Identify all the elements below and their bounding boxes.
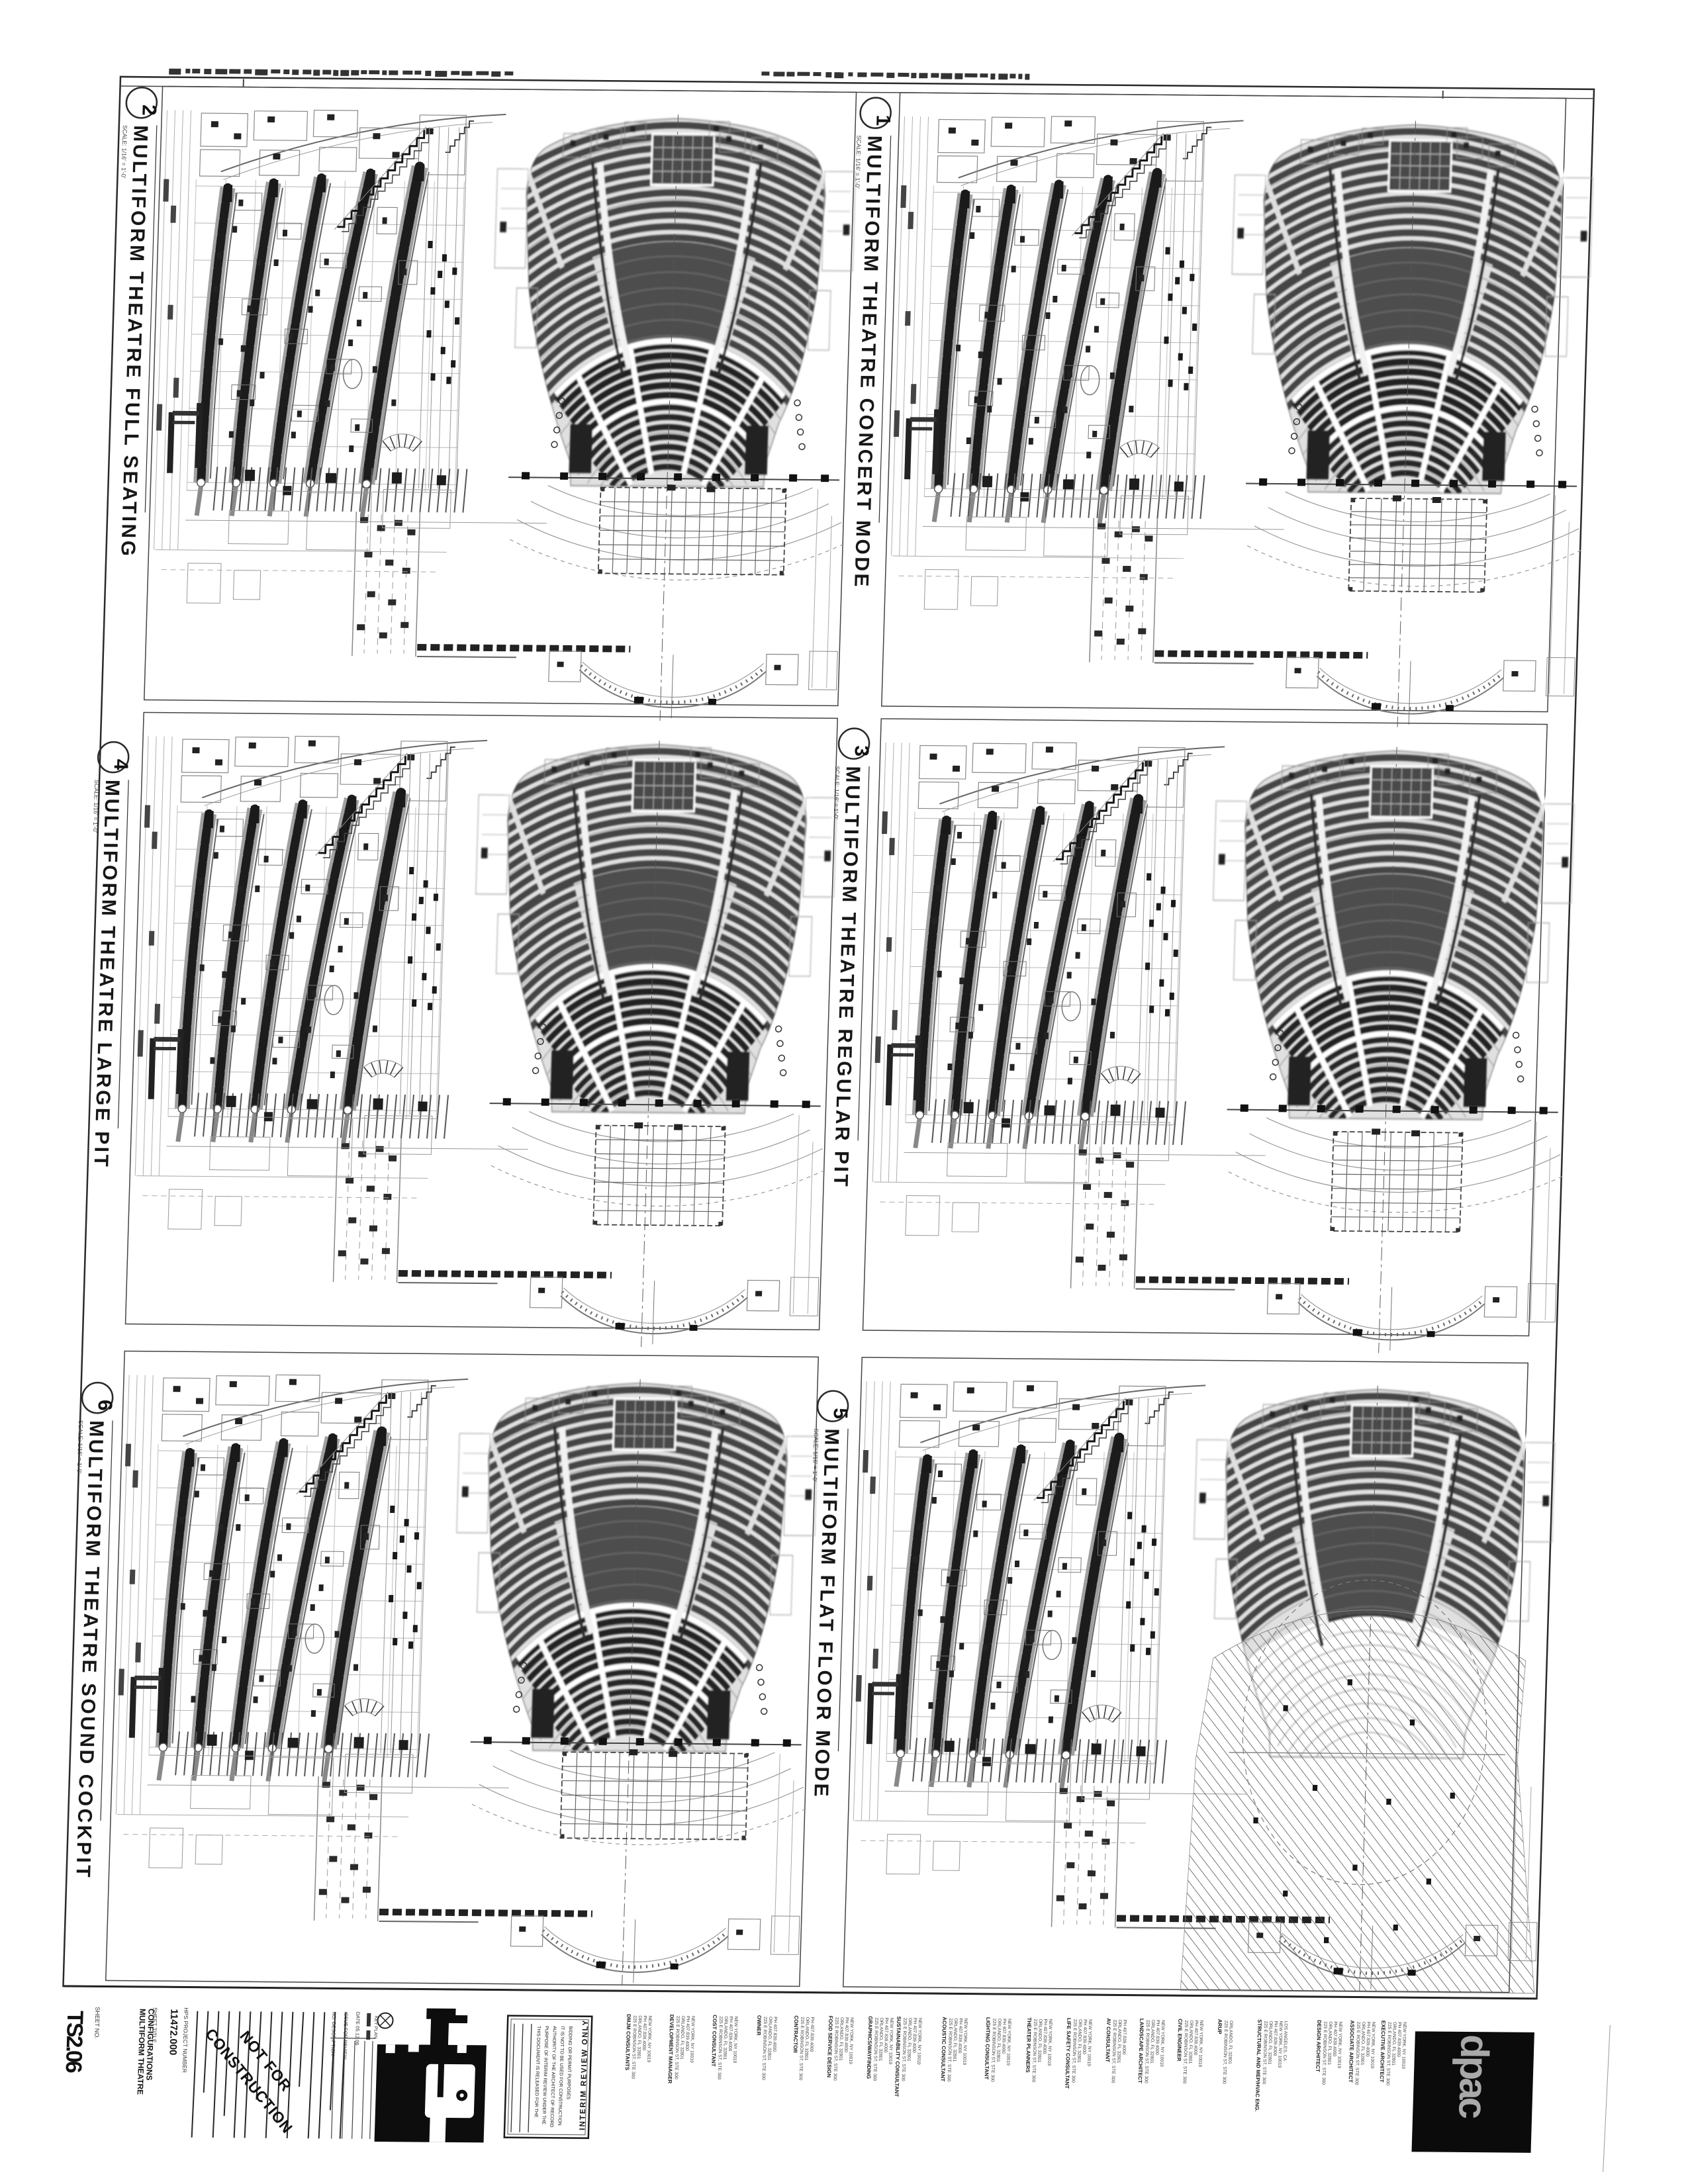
svg-text:ISSUE FOR REVIEW: ISSUE FOR REVIEW [342, 2012, 349, 2060]
svg-text:SUSTAINABILITY CONSULTANT: SUSTAINABILITY CONSULTANT [894, 2017, 902, 2097]
svg-text:3: 3 [851, 745, 872, 756]
svg-text:SCALE: 1/16' = 1'-0': SCALE: 1/16' = 1'-0' [76, 1420, 84, 1474]
svg-text:AV CONSULTANT: AV CONSULTANT [1104, 2018, 1111, 2062]
svg-text:THEATER PLANNERS: THEATER PLANNERS [1025, 2017, 1033, 2073]
svg-text:CONTRACTOR: CONTRACTOR [792, 2015, 800, 2053]
svg-text:DESIGN ARCHITECT: DESIGN ARCHITECT [1315, 2020, 1322, 2072]
svg-text:CIVIL ENGINEER: CIVIL ENGINEER [1176, 2019, 1183, 2062]
svg-text:MULTIFORM THEATRE LARGE PIT: MULTIFORM THEATRE LARGE PIT [90, 780, 124, 1169]
svg-text:SCALE: 1/16' = 1'-0': SCALE: 1/16' = 1'-0' [854, 135, 862, 189]
svg-text:LANDSCAPE ARCHITECT: LANDSCAPE ARCHITECT [1137, 2019, 1145, 2083]
svg-text:INTERIM REVIEW ONLY: INTERIM REVIEW ONLY [579, 2019, 590, 2130]
svg-text:1: 1 [872, 114, 894, 126]
svg-text:IT IS NOT TO BE USED FOR CONST: IT IS NOT TO BE USED FOR CONSTRUCTION [557, 2026, 565, 2125]
svg-text:4: 4 [110, 759, 132, 770]
svg-text:NO. DESCRIPTION: NO. DESCRIPTION [330, 2011, 337, 2056]
svg-text:DATE 05.12.06: DATE 05.12.06 [354, 2012, 361, 2046]
svg-text:KEY PLAN: KEY PLAN [373, 2016, 378, 2038]
svg-text:DMJM CONSULTANTS: DMJM CONSULTANTS [624, 2014, 632, 2071]
svg-text:SCALE: 1/16' = 1'-0': SCALE: 1/16' = 1'-0' [833, 766, 841, 819]
svg-text:AUTHORITY OF THE ARCHITECT OF: AUTHORITY OF THE ARCHITECT OF RECORD [549, 2026, 557, 2127]
svg-text:11472.000: 11472.000 [167, 2009, 179, 2055]
svg-text:LIFE SAFETY CONSULTANT: LIFE SAFETY CONSULTANT [1064, 2018, 1072, 2089]
svg-text:5: 5 [829, 1408, 851, 1419]
svg-text:SHEET NO.: SHEET NO. [93, 2007, 101, 2038]
svg-text:FOOD SERVICE DESIGN: FOOD SERVICE DESIGN [826, 2016, 834, 2077]
svg-text:dpac: dpac [1450, 2034, 1497, 2118]
svg-text:DEVELOPMENT MANAGER: DEVELOPMENT MANAGER [667, 2015, 675, 2084]
svg-text:HPS PROJECT NUMBER: HPS PROJECT NUMBER [181, 2007, 190, 2073]
svg-text:SCALE: 1/16' = 1'-0': SCALE: 1/16' = 1'-0' [92, 780, 100, 833]
svg-text:EXECUTIVE ARCHITECT: EXECUTIVE ARCHITECT [1379, 2021, 1387, 2083]
svg-text:MULTIFORM THEATRE SOUND COCKPI: MULTIFORM THEATRE SOUND COCKPIT [71, 1420, 107, 1880]
svg-text:OWNER: OWNER [755, 2015, 762, 2036]
svg-text:GRAPHICS/WAYFINDING: GRAPHICS/WAYFINDING [866, 2016, 874, 2079]
svg-text:MULTIFORM THEATRE FULL SEATING: MULTIFORM THEATRE FULL SEATING [117, 125, 152, 559]
svg-text:PURPOSE OF INTERIM REVIEW UNDE: PURPOSE OF INTERIM REVIEW UNDER THE [541, 2026, 548, 2124]
svg-text:ACOUSTIC CONSULTANT: ACOUSTIC CONSULTANT [939, 2017, 947, 2081]
svg-text:LIGHTING CONSULTANT: LIGHTING CONSULTANT [984, 2017, 992, 2080]
svg-text:BIDDING OR PERMIT PURPOSES: BIDDING OR PERMIT PURPOSES [566, 2026, 573, 2099]
svg-text:TS2.06: TS2.06 [61, 2011, 88, 2073]
svg-text:COST CONSULTANT: COST CONSULTANT [710, 2015, 718, 2067]
svg-text:ASSOCIATE ARCHITECT: ASSOCIATE ARCHITECT [1348, 2020, 1356, 2082]
svg-text:STRUCTURAL AND MEP/HVAC ENG.: STRUCTURAL AND MEP/HVAC ENG. [1254, 2019, 1262, 2111]
svg-text:THIS DOCUMENT IS RELEASED FOR: THIS DOCUMENT IS RELEASED FOR THE [534, 2026, 541, 2118]
svg-text:6: 6 [94, 1400, 116, 1411]
svg-text:2: 2 [138, 105, 160, 116]
svg-text:MULTIFORM THEATRE CONCERT MODE: MULTIFORM THEATRE CONCERT MODE [850, 136, 886, 590]
svg-text:ARUP: ARUP [1217, 2019, 1223, 2034]
svg-text:SCALE: 1/16' = 1'-0': SCALE: 1/16' = 1'-0' [120, 125, 128, 179]
